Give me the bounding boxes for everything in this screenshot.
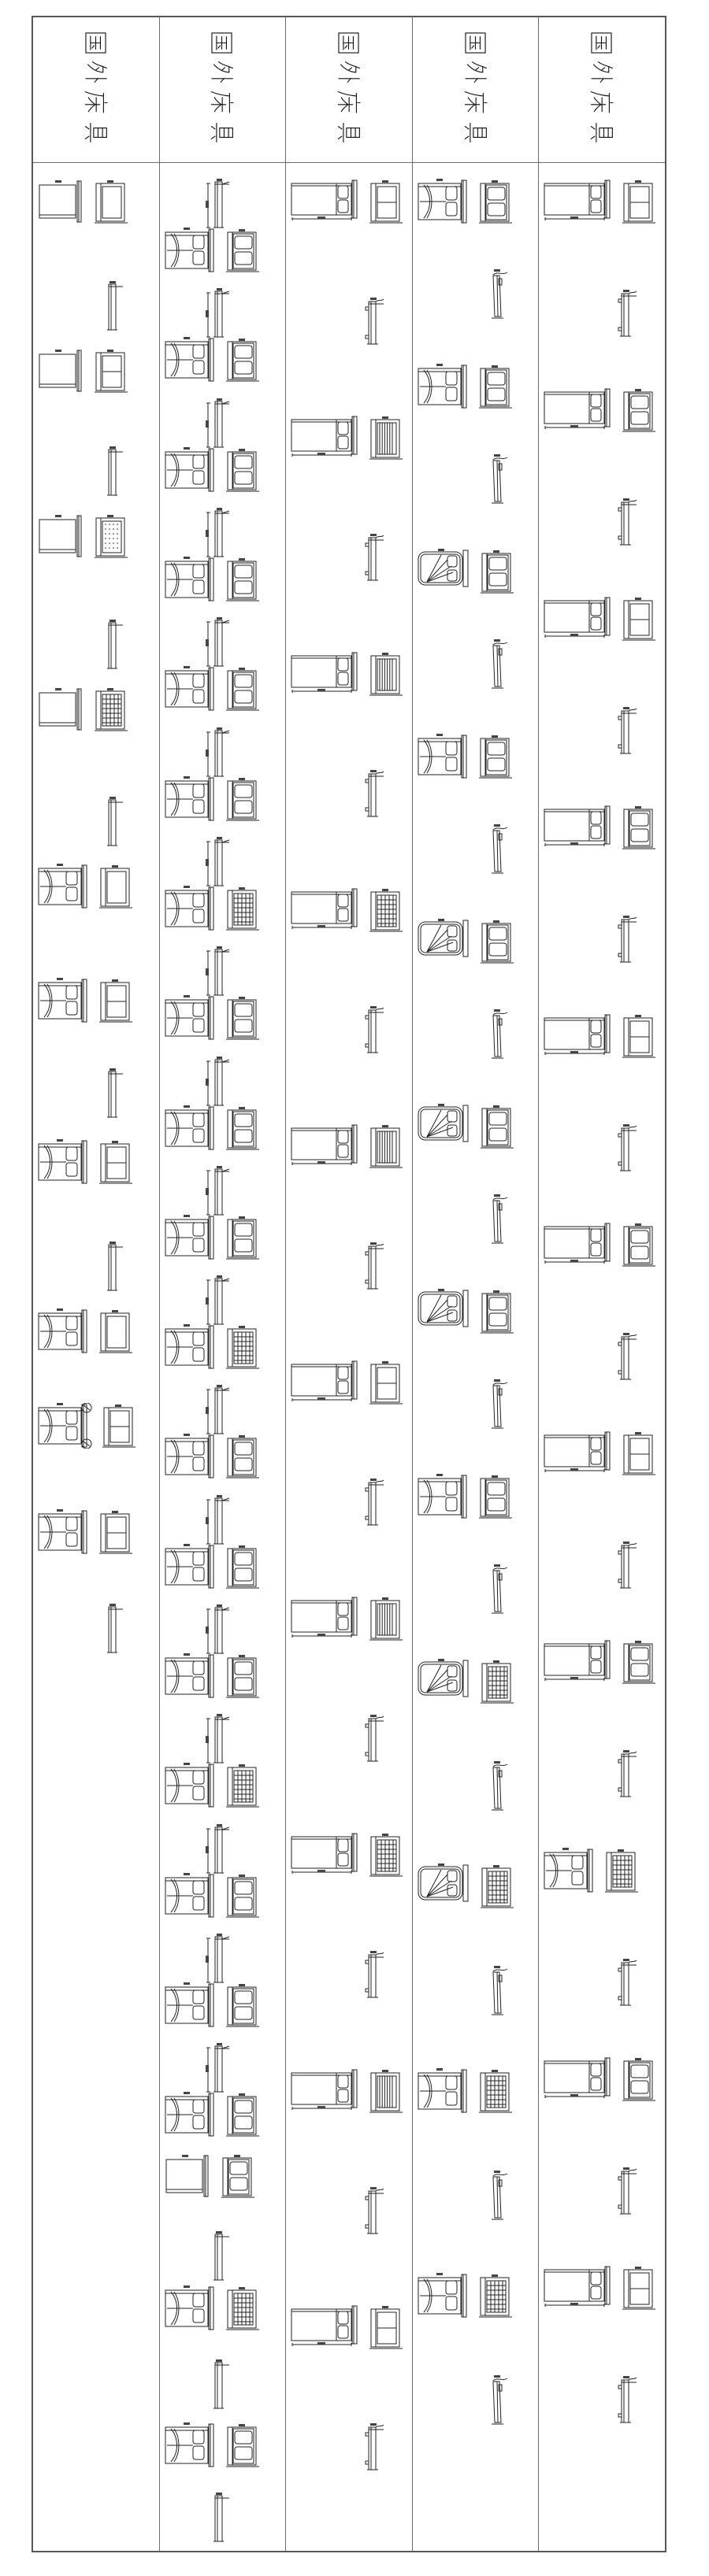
bed-block-row	[544, 2056, 665, 2167]
header-title-glyphs	[197, 30, 247, 150]
bed-side-elevation	[206, 837, 232, 890]
bed-block-row	[165, 1544, 286, 1604]
bed-headboard-elevation	[369, 1361, 404, 1407]
bed-headboard-elevation	[479, 2274, 514, 2320]
catalog-column-5	[539, 17, 665, 2551]
bed-block-row	[165, 1653, 286, 1714]
bed-block-row	[206, 1385, 286, 1434]
bed-block-row	[358, 297, 412, 415]
bed-block-row	[165, 995, 286, 1056]
bed-block-row	[206, 617, 286, 666]
bed-side-elevation	[611, 1123, 638, 1177]
bed-headboard-elevation	[369, 1125, 404, 1171]
column-header	[413, 17, 539, 163]
bed-plan-drawing	[38, 978, 91, 1023]
column-body	[160, 163, 286, 2551]
bed-block-row	[544, 1430, 665, 1541]
bed-block-row	[544, 1222, 665, 1332]
bed-block-row	[291, 887, 412, 1005]
bed-side-elevation	[611, 1332, 638, 1386]
bed-side-elevation	[206, 946, 232, 1000]
bed-block-row	[482, 1379, 539, 1474]
bed-block-row	[206, 1495, 286, 1544]
bed-headboard-elevation	[99, 1511, 134, 1556]
bed-headboard-elevation	[95, 515, 129, 561]
bed-side-elevation	[358, 1005, 385, 1059]
bed-side-elevation	[206, 1714, 232, 1767]
bed-block-row	[206, 1824, 286, 1873]
bed-side-elevation	[99, 281, 123, 335]
bed-plan-drawing	[418, 2273, 471, 2319]
bed-plan-drawing	[165, 1434, 218, 1479]
bed-block-row	[482, 639, 539, 734]
bed-side-elevation	[358, 769, 385, 823]
bed-side-elevation	[206, 2359, 229, 2413]
bed-plan-drawing	[165, 886, 218, 931]
bed-block-row	[206, 837, 286, 886]
bed-block-row	[38, 513, 159, 620]
bed-block-row	[611, 1541, 665, 1639]
bed-plan-drawing	[544, 2265, 614, 2308]
bed-block-row	[482, 269, 539, 364]
bed-block-row	[291, 1596, 412, 1714]
bed-plan-drawing	[165, 776, 218, 822]
bed-plan-drawing	[38, 687, 87, 732]
bed-side-elevation	[99, 797, 123, 850]
bed-side-elevation	[99, 446, 123, 500]
bed-side-elevation	[611, 915, 638, 968]
column-header	[286, 17, 412, 163]
bed-plan-drawing	[165, 1215, 218, 1260]
bed-block-row	[418, 549, 539, 639]
bed-plan-drawing	[165, 228, 218, 273]
bed-headboard-elevation	[226, 1216, 261, 1262]
bed-side-elevation	[206, 727, 232, 781]
catalog-column-2	[160, 17, 287, 2551]
catalog-column-3	[286, 17, 413, 2551]
bed-plan-drawing	[544, 805, 614, 847]
bed-side-elevation	[611, 498, 638, 551]
bed-headboard-elevation	[369, 653, 404, 698]
bed-headboard-elevation	[226, 778, 261, 824]
bed-block-row	[99, 446, 159, 513]
bed-block-row	[38, 1139, 159, 1242]
bed-side-elevation	[611, 706, 638, 760]
bed-block-row	[611, 2375, 665, 2474]
bed-block-row	[38, 179, 159, 281]
bed-headboard-elevation	[99, 1141, 134, 1186]
bed-plan-drawing	[165, 1873, 218, 1919]
bed-headboard-elevation	[221, 2155, 256, 2200]
bed-side-elevation	[206, 398, 232, 452]
bed-plan-drawing	[165, 1105, 218, 1151]
bed-plan-drawing	[544, 1430, 614, 1473]
bed-side-elevation	[206, 1495, 232, 1549]
bed-headboard-elevation	[226, 2287, 261, 2333]
bed-block-row	[418, 1289, 539, 1379]
bed-block-row	[482, 1564, 539, 1659]
column-body	[33, 163, 159, 2551]
bed-plan-drawing	[544, 387, 614, 430]
bed-block-row	[482, 1966, 539, 2068]
bed-side-elevation	[206, 1824, 232, 1878]
bed-side-elevation	[206, 1604, 232, 1658]
bed-block-row	[165, 1215, 286, 1275]
bed-block-row	[611, 915, 665, 1013]
bed-block-row	[544, 805, 665, 915]
bed-plan-drawing	[418, 2068, 471, 2114]
bed-block-row	[482, 2171, 539, 2273]
bed-headboard-elevation	[481, 920, 515, 966]
bed-side-elevation	[99, 1242, 123, 1295]
bed-plan-drawing	[38, 1403, 95, 1449]
bed-plan-drawing	[38, 1509, 91, 1555]
header-title-glyphs	[324, 30, 374, 150]
bed-plan-drawing	[38, 864, 91, 909]
bed-block-row	[206, 1275, 286, 1324]
bed-block-row	[418, 1864, 539, 1966]
bed-block-row	[165, 557, 286, 617]
bed-headboard-elevation	[226, 1764, 261, 1810]
bed-block-row	[482, 1009, 539, 1104]
bed-plan-drawing	[291, 1123, 362, 1166]
bed-side-elevation	[482, 2375, 509, 2429]
bed-side-elevation	[206, 179, 232, 232]
bed-headboard-elevation	[479, 735, 514, 781]
bed-side-elevation	[358, 533, 385, 587]
bed-block-row	[38, 348, 159, 446]
column-body	[413, 163, 539, 2551]
bed-block-row	[99, 1604, 159, 1675]
bed-side-elevation	[206, 1166, 232, 1220]
bed-block-row	[165, 228, 286, 288]
bed-plan-drawing	[418, 1864, 473, 1903]
bed-block-row	[206, 2043, 286, 2092]
bed-headboard-elevation	[622, 389, 657, 435]
bed-side-elevation	[206, 2043, 232, 2097]
bed-block-row	[611, 289, 665, 387]
bed-block-row	[165, 1434, 286, 1494]
bed-headboard-elevation	[226, 2424, 261, 2470]
bed-plan-drawing	[418, 1659, 473, 1698]
bed-block-row	[38, 687, 159, 797]
bed-block-row	[358, 1478, 412, 1596]
bed-block-row	[165, 1982, 286, 2043]
bed-block-row	[418, 1659, 539, 1761]
bed-headboard-elevation	[99, 1310, 134, 1356]
bed-side-elevation	[358, 1242, 385, 1295]
bed-block-row	[165, 2422, 286, 2493]
bed-side-elevation	[482, 1009, 509, 1063]
bed-block-row	[206, 727, 286, 776]
bed-block-row	[544, 387, 665, 498]
bed-plan-drawing	[544, 2056, 614, 2099]
catalog-sheet	[0, 0, 709, 2576]
bed-plan-drawing	[291, 179, 362, 221]
bed-headboard-elevation	[622, 1432, 657, 1478]
bed-plan-drawing	[291, 651, 362, 694]
bed-block-row	[291, 415, 412, 533]
bed-headboard-elevation	[226, 449, 261, 494]
bed-block-row	[99, 620, 159, 687]
bed-block-row	[418, 364, 539, 454]
bed-block-row	[544, 1639, 665, 1749]
bed-headboard-elevation	[226, 1435, 261, 1481]
bed-headboard-elevation	[481, 550, 515, 596]
bed-side-elevation	[99, 620, 123, 673]
bed-block-row	[165, 1105, 286, 1166]
bed-headboard-elevation	[226, 1875, 261, 1920]
bed-plan-drawing	[165, 995, 218, 1041]
bed-plan-drawing	[544, 1639, 614, 1682]
bed-plan-drawing	[544, 1222, 614, 1264]
bed-block-row	[482, 2375, 539, 2478]
bed-block-row	[165, 886, 286, 946]
bed-block-row	[418, 1104, 539, 1194]
bed-plan-drawing	[291, 1832, 362, 1875]
bed-block-row	[358, 769, 412, 887]
bed-plan-drawing	[544, 1013, 614, 1056]
bed-side-elevation	[611, 2167, 638, 2220]
bed-block-row	[165, 337, 286, 398]
bed-block-row	[206, 288, 286, 337]
bed-headboard-elevation	[226, 1326, 261, 1371]
bed-block-row	[206, 2493, 286, 2551]
bed-plan-drawing	[165, 2153, 213, 2199]
bed-block-row	[418, 734, 539, 824]
bed-plan-drawing	[291, 1360, 362, 1402]
bed-headboard-elevation	[369, 2070, 404, 2115]
bed-plan-drawing	[418, 919, 473, 958]
bed-headboard-elevation	[99, 865, 134, 911]
bed-block-row	[611, 498, 665, 596]
bed-block-row	[291, 651, 412, 769]
bed-block-row	[165, 2285, 286, 2359]
bed-plan-drawing	[418, 734, 471, 779]
bed-block-row	[611, 1749, 665, 1848]
bed-headboard-elevation	[622, 180, 657, 226]
bed-side-elevation	[482, 2171, 509, 2224]
bed-headboard-elevation	[369, 889, 404, 935]
bed-headboard-elevation	[479, 1475, 514, 1521]
bed-side-elevation	[99, 1068, 123, 1122]
bed-plan-drawing	[418, 1104, 473, 1143]
bed-block-row	[611, 1123, 665, 1222]
bed-headboard-elevation	[622, 2267, 657, 2312]
bed-side-elevation	[482, 454, 509, 508]
bed-block-row	[165, 447, 286, 508]
bed-side-elevation	[482, 1966, 509, 2019]
bed-side-elevation	[482, 269, 509, 323]
bed-side-elevation	[482, 1379, 509, 1433]
bed-block-row	[611, 2167, 665, 2265]
bed-block-row	[482, 824, 539, 919]
bed-block-row	[206, 1166, 286, 1215]
bed-block-row	[418, 919, 539, 1009]
bed-plan-drawing	[38, 348, 87, 394]
bed-headboard-elevation	[622, 598, 657, 643]
bed-block-row	[206, 1057, 286, 1105]
catalog-table	[32, 16, 666, 2552]
bed-plan-drawing	[165, 1763, 218, 1808]
bed-block-row	[482, 454, 539, 549]
bed-headboard-elevation	[479, 180, 514, 226]
bed-headboard-elevation	[226, 2093, 261, 2139]
bed-headboard-elevation	[226, 229, 261, 275]
bed-headboard-elevation	[95, 688, 129, 734]
bed-block-row	[206, 1934, 286, 1982]
column-body	[539, 163, 665, 2551]
bed-side-elevation	[206, 1385, 232, 1438]
bed-plan-drawing	[165, 557, 218, 602]
bed-block-row	[165, 1324, 286, 1385]
bed-side-elevation	[206, 1934, 232, 1987]
bed-block-row	[418, 2068, 539, 2171]
bed-block-row	[206, 946, 286, 995]
catalog-column-4	[413, 17, 540, 2551]
bed-side-elevation	[482, 824, 509, 878]
bed-block-row	[38, 1308, 159, 1403]
bed-block-row	[358, 1242, 412, 1360]
bed-block-row	[358, 533, 412, 651]
bed-block-row	[165, 2153, 286, 2231]
column-header	[539, 17, 665, 163]
bed-block-row	[38, 1509, 159, 1604]
bed-block-row	[206, 2359, 286, 2422]
bed-block-row	[206, 508, 286, 557]
bed-headboard-elevation	[95, 350, 129, 395]
bed-side-elevation	[206, 2493, 229, 2546]
bed-side-elevation	[206, 617, 232, 671]
bed-headboard-elevation	[369, 416, 404, 462]
bed-headboard-elevation	[479, 2070, 514, 2115]
bed-block-row	[544, 596, 665, 706]
bed-headboard-elevation	[226, 887, 261, 933]
bed-side-elevation	[206, 1275, 232, 1329]
bed-side-elevation	[482, 1761, 509, 1815]
header-title-glyphs	[577, 30, 627, 150]
bed-headboard-elevation	[481, 1105, 515, 1151]
bed-headboard-elevation	[369, 2306, 404, 2352]
header-title-glyphs	[71, 30, 121, 150]
bed-block-row	[291, 1832, 412, 1950]
bed-block-row	[38, 1403, 159, 1509]
column-header	[160, 17, 286, 163]
bed-plan-drawing	[165, 1982, 218, 2028]
bed-side-elevation	[611, 2375, 638, 2429]
bed-block-row	[418, 179, 539, 269]
bed-side-elevation	[482, 1194, 509, 1248]
bed-plan-drawing	[165, 2092, 218, 2137]
bed-side-elevation	[358, 2186, 385, 2240]
bed-headboard-elevation	[481, 1865, 515, 1911]
bed-plan-drawing	[291, 887, 362, 930]
bed-plan-drawing	[165, 447, 218, 493]
bed-plan-drawing	[291, 415, 362, 457]
bed-block-row	[206, 1604, 286, 1653]
bed-plan-drawing	[291, 1596, 362, 1638]
column-body	[286, 163, 412, 2551]
bed-plan-drawing	[418, 1474, 471, 1519]
bed-headboard-elevation	[95, 180, 129, 226]
bed-plan-drawing	[418, 364, 471, 409]
bed-plan-drawing	[544, 179, 614, 221]
bed-headboard-elevation	[481, 1660, 515, 1706]
bed-plan-drawing	[165, 337, 218, 383]
bed-side-elevation	[206, 288, 232, 342]
bed-side-elevation	[611, 289, 638, 342]
bed-block-row	[165, 1873, 286, 1934]
bed-plan-drawing	[418, 549, 473, 588]
bed-block-row	[358, 2186, 412, 2304]
bed-headboard-elevation	[226, 668, 261, 713]
bed-block-row	[206, 179, 286, 228]
bed-plan-drawing	[165, 1544, 218, 1590]
bed-headboard-elevation	[605, 1849, 640, 1895]
bed-side-elevation	[611, 1958, 638, 2012]
bed-plan-drawing	[544, 596, 614, 638]
bed-side-elevation	[358, 1950, 385, 2004]
bed-plan-drawing	[291, 2304, 362, 2347]
bed-block-row	[358, 1005, 412, 1123]
bed-headboard-elevation	[369, 180, 404, 226]
column-header	[33, 17, 159, 163]
bed-block-row	[358, 2422, 412, 2541]
bed-block-row	[165, 1763, 286, 1823]
bed-block-row	[99, 281, 159, 348]
bed-block-row	[358, 1950, 412, 2068]
bed-plan-drawing	[165, 2285, 218, 2331]
bed-headboard-elevation	[622, 1015, 657, 1060]
bed-block-row	[291, 179, 412, 297]
bed-plan-drawing	[38, 513, 87, 559]
bed-side-elevation	[482, 1564, 509, 1618]
bed-side-elevation	[99, 1604, 123, 1657]
bed-plan-drawing	[418, 1289, 473, 1328]
bed-block-row	[291, 2068, 412, 2186]
catalog-column-1	[33, 17, 160, 2551]
bed-side-elevation	[611, 1749, 638, 1803]
bed-headboard-elevation	[226, 1984, 261, 2030]
bed-block-row	[291, 2304, 412, 2422]
bed-headboard-elevation	[369, 1597, 404, 1643]
bed-block-row	[165, 776, 286, 837]
bed-headboard-elevation	[622, 1223, 657, 1269]
bed-block-row	[99, 1068, 159, 1139]
bed-plan-drawing	[38, 179, 87, 224]
bed-block-row	[291, 1123, 412, 1242]
bed-side-elevation	[206, 2231, 229, 2285]
bed-block-row	[611, 1332, 665, 1430]
bed-block-row	[418, 1474, 539, 1564]
bed-block-row	[611, 706, 665, 805]
bed-headboard-elevation	[226, 558, 261, 604]
bed-plan-drawing	[165, 1653, 218, 1699]
bed-block-row	[206, 2231, 286, 2285]
bed-plan-drawing	[38, 1139, 91, 1185]
bed-block-row	[544, 1848, 665, 1958]
bed-headboard-elevation	[99, 979, 134, 1025]
bed-headboard-elevation	[479, 365, 514, 411]
bed-block-row	[165, 666, 286, 727]
bed-plan-drawing	[38, 1308, 91, 1354]
bed-headboard-elevation	[226, 1655, 261, 1701]
bed-headboard-elevation	[481, 1290, 515, 1336]
header-title-glyphs	[451, 30, 501, 150]
bed-side-elevation	[358, 297, 385, 350]
bed-block-row	[358, 1714, 412, 1832]
bed-block-row	[544, 179, 665, 289]
